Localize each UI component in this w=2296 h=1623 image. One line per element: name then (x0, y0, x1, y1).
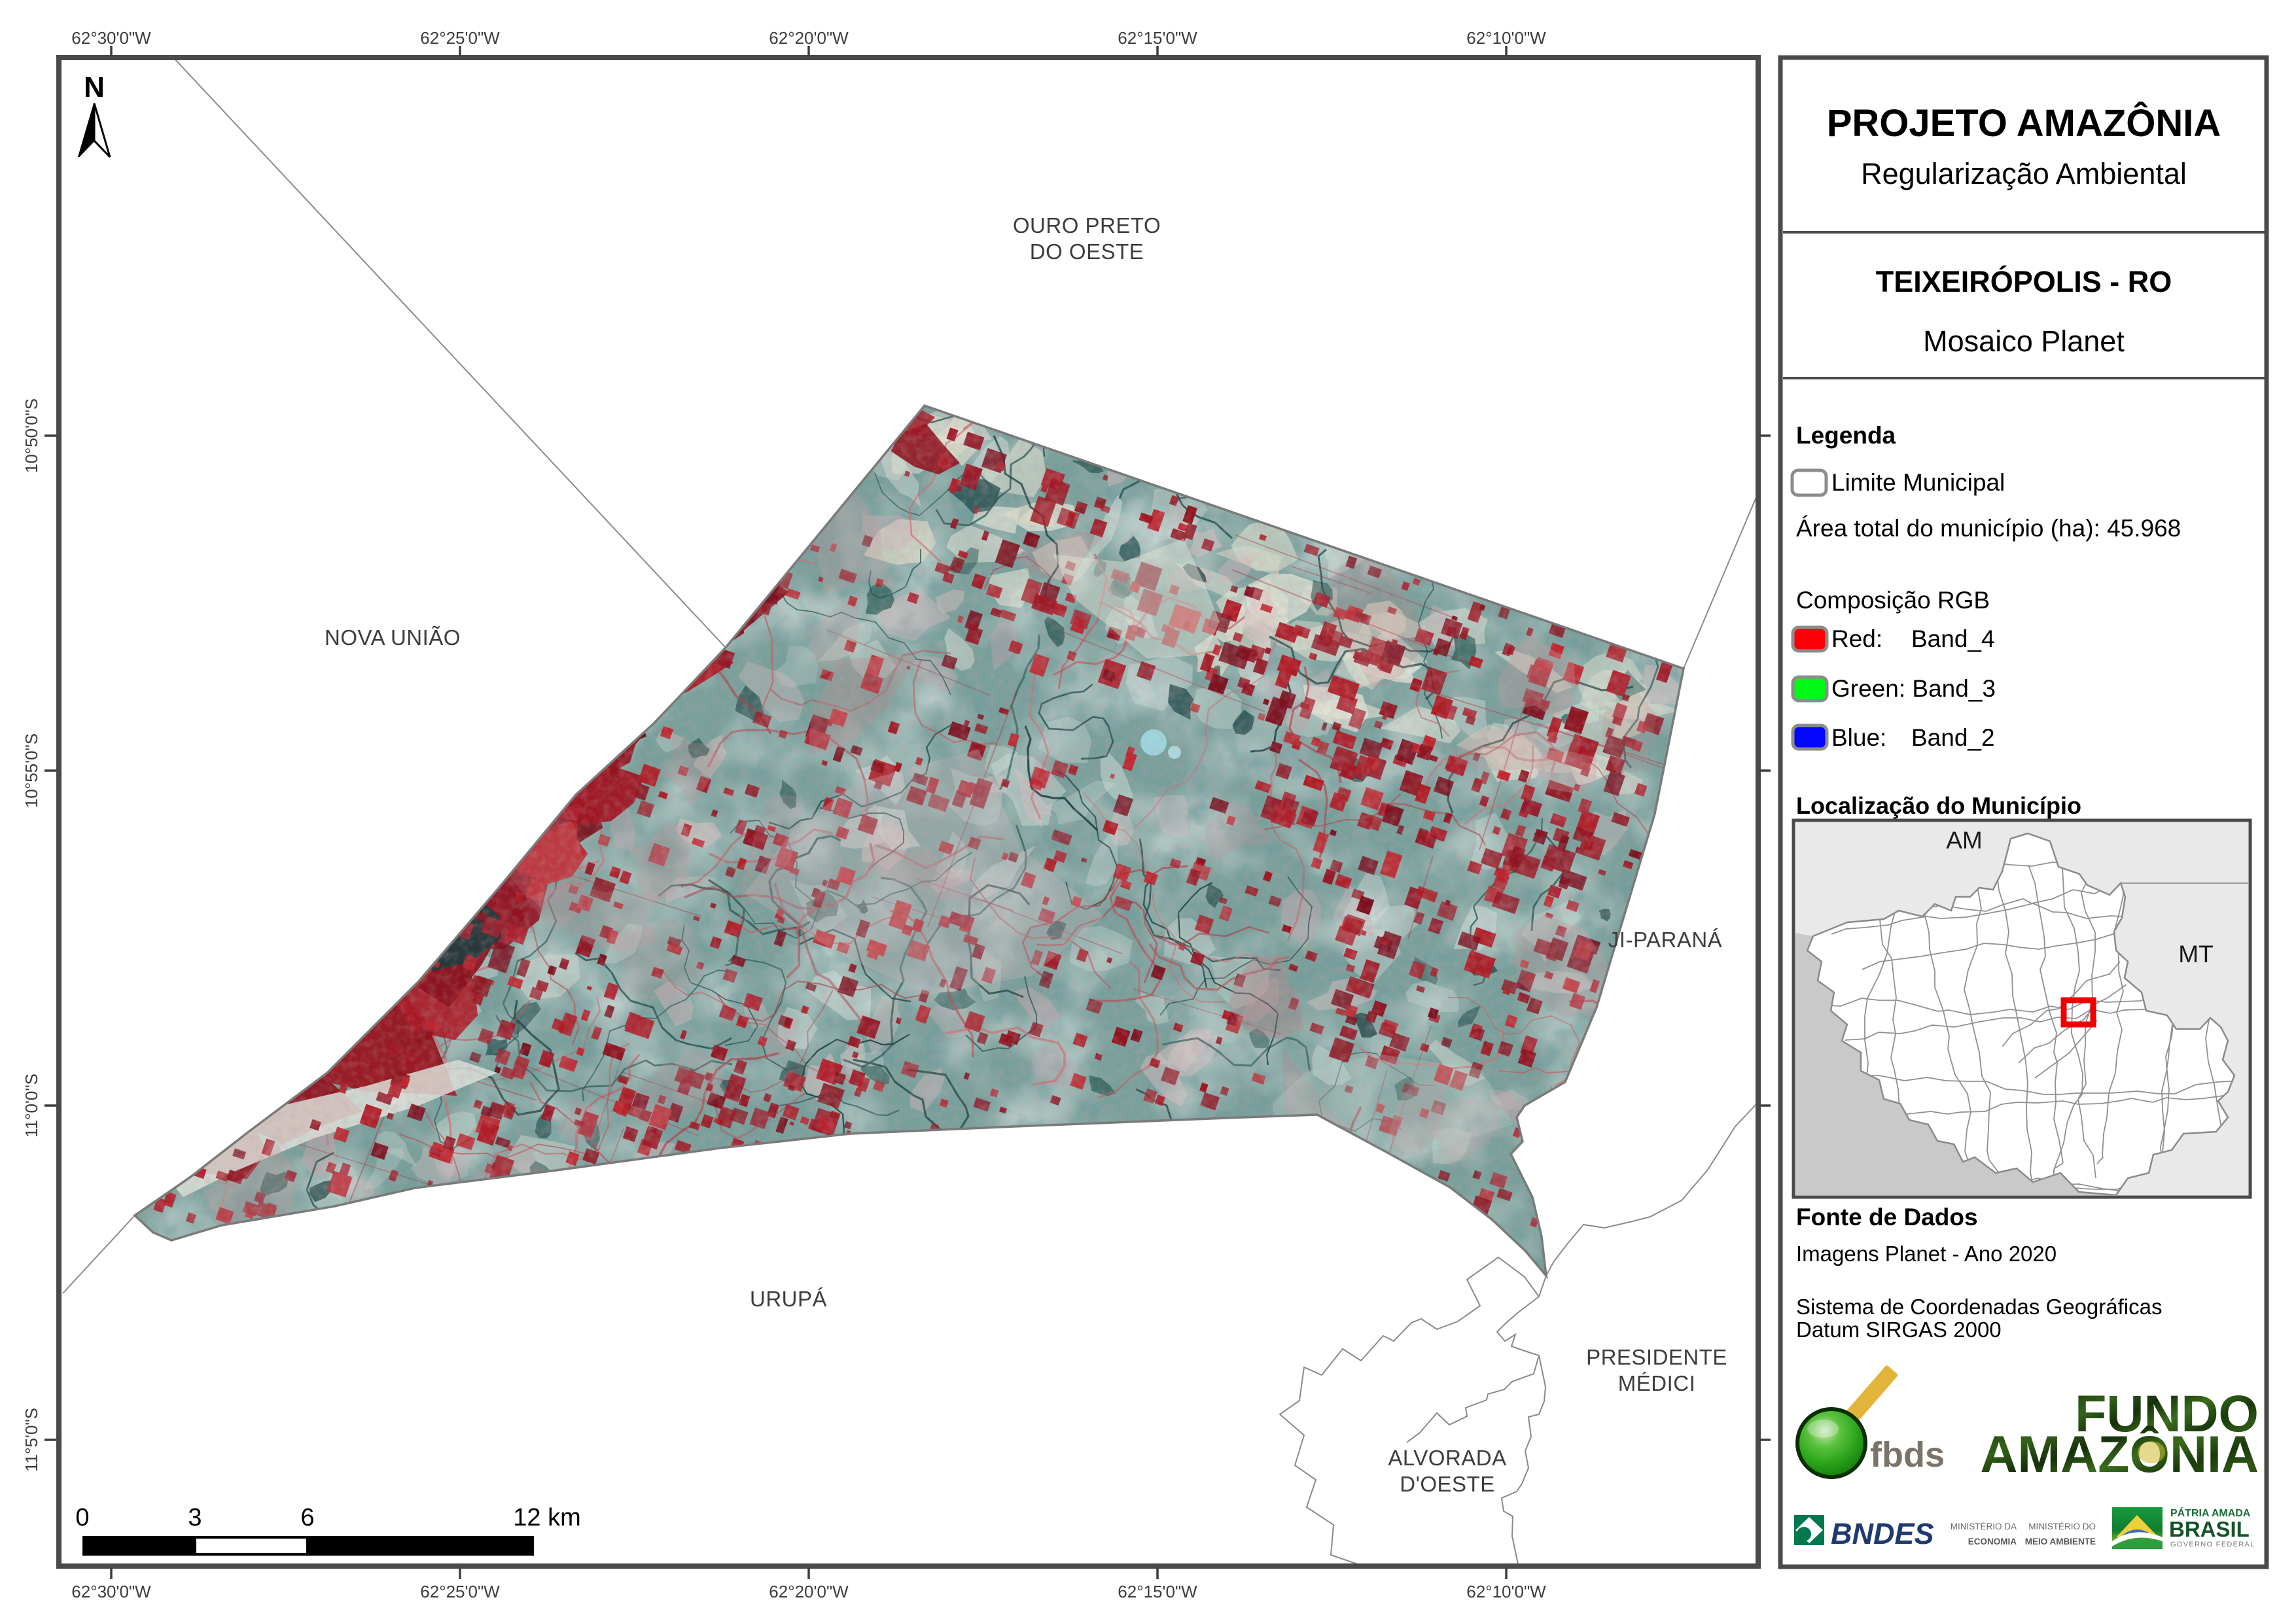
svg-text:OURO PRETO: OURO PRETO (1013, 213, 1161, 237)
svg-text:NOVA UNIÃO: NOVA UNIÃO (325, 625, 461, 650)
svg-text:TEIXEIRÓPOLIS - RO: TEIXEIRÓPOLIS - RO (1876, 265, 2172, 298)
svg-text:10°50'0"S: 10°50'0"S (22, 398, 41, 473)
svg-text:62°30'0"W: 62°30'0"W (71, 1582, 151, 1601)
svg-text:62°15'0"W: 62°15'0"W (1118, 1582, 1197, 1601)
svg-text:BNDES: BNDES (1831, 1517, 1934, 1550)
svg-text:MÉDICI: MÉDICI (1618, 1371, 1696, 1395)
svg-text:Band_2: Band_2 (1911, 724, 1995, 751)
svg-text:MT: MT (2178, 941, 2213, 968)
svg-text:62°25'0"W: 62°25'0"W (420, 1582, 500, 1601)
svg-text:ECONOMIA: ECONOMIA (1968, 1537, 2017, 1546)
svg-text:62°20'0"W: 62°20'0"W (769, 1582, 849, 1601)
svg-text:12 km: 12 km (513, 1504, 580, 1531)
svg-text:Fonte de Dados: Fonte de Dados (1796, 1204, 1978, 1230)
svg-text:11°5'0"S: 11°5'0"S (22, 1408, 41, 1472)
svg-text:Green: Band_3: Green: Band_3 (1831, 675, 1996, 702)
svg-text:MEIO AMBIENTE: MEIO AMBIENTE (2025, 1537, 2096, 1546)
svg-text:ALVORADA: ALVORADA (1388, 1446, 1506, 1470)
svg-text:10°55'0"S: 10°55'0"S (22, 733, 41, 808)
svg-text:Blue:: Blue: (1831, 724, 1886, 751)
svg-text:AM: AM (1946, 827, 1983, 854)
svg-text:Band_4: Band_4 (1911, 625, 1995, 652)
svg-text:Imagens Planet - Ano 2020: Imagens Planet - Ano 2020 (1796, 1242, 2057, 1266)
svg-text:MINISTÉRIO DA: MINISTÉRIO DA (1951, 1522, 2017, 1531)
svg-text:6: 6 (300, 1504, 314, 1531)
svg-text:PRESIDENTE: PRESIDENTE (1586, 1345, 1727, 1369)
svg-text:Composição RGB: Composição RGB (1796, 587, 1990, 614)
svg-text:DO OESTE: DO OESTE (1030, 239, 1144, 264)
svg-text:62°30'0"W: 62°30'0"W (71, 28, 151, 48)
svg-text:BRASIL: BRASIL (2169, 1517, 2250, 1541)
svg-text:Limite Municipal: Limite Municipal (1831, 469, 2005, 496)
svg-text:62°10'0"W: 62°10'0"W (1466, 28, 1546, 48)
svg-text:Datum SIRGAS 2000: Datum SIRGAS 2000 (1796, 1318, 2002, 1342)
svg-text:Sistema de Coordenadas Geográf: Sistema de Coordenadas Geográficas (1796, 1295, 2163, 1319)
svg-text:AMAZÔNIA: AMAZÔNIA (1980, 1425, 2259, 1483)
svg-text:3: 3 (188, 1504, 202, 1531)
svg-text:JI-PARANÁ: JI-PARANÁ (1608, 928, 1722, 952)
svg-text:11°0'0"S: 11°0'0"S (22, 1073, 41, 1138)
svg-text:fbds: fbds (1870, 1435, 1945, 1475)
svg-text:Mosaico Planet: Mosaico Planet (1923, 324, 2125, 358)
svg-text:Localização do Município: Localização do Município (1796, 792, 2081, 819)
svg-text:62°25'0"W: 62°25'0"W (420, 28, 500, 48)
svg-text:Regularização Ambiental: Regularização Ambiental (1861, 157, 2187, 190)
svg-text:Legenda: Legenda (1796, 422, 1896, 449)
svg-text:MINISTÉRIO DO: MINISTÉRIO DO (2028, 1522, 2096, 1531)
svg-text:Red:: Red: (1831, 625, 1882, 652)
svg-text:D'OESTE: D'OESTE (1400, 1472, 1495, 1496)
svg-text:62°15'0"W: 62°15'0"W (1118, 28, 1197, 48)
svg-text:Área total do município (ha):: Área total do município (ha): 45.968 (1796, 515, 2181, 542)
svg-text:GOVERNO FEDERAL: GOVERNO FEDERAL (2170, 1541, 2255, 1548)
svg-text:62°20'0"W: 62°20'0"W (769, 28, 849, 48)
svg-text:N: N (84, 71, 105, 103)
svg-text:62°10'0"W: 62°10'0"W (1466, 1582, 1546, 1601)
svg-text:0: 0 (75, 1504, 89, 1531)
svg-text:PROJETO AMAZÔNIA: PROJETO AMAZÔNIA (1827, 102, 2221, 145)
svg-text:URUPÁ: URUPÁ (750, 1287, 827, 1311)
